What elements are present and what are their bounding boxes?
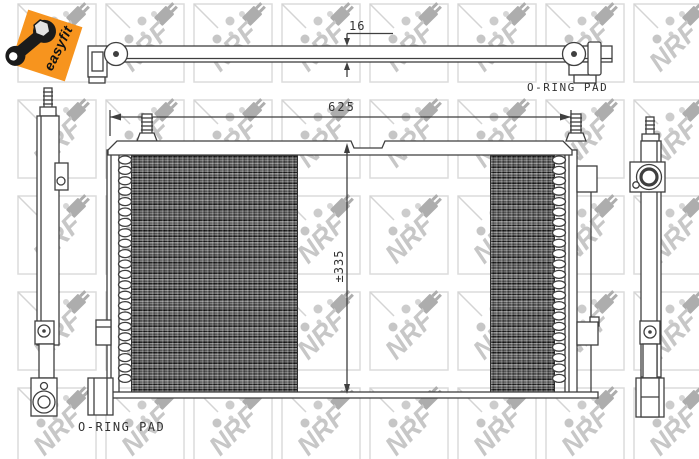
fin-coil-right (553, 156, 566, 382)
bracket-right-lower (577, 322, 598, 345)
fin-coil-left (119, 156, 132, 382)
wrench-bolt-icon (0, 2, 82, 86)
side-plate-right (565, 150, 577, 397)
top-right-tab (588, 42, 601, 75)
dim-depth-label: 16 (349, 19, 365, 33)
dim-width-label: 625 (318, 100, 366, 114)
mount-stud-left (137, 114, 157, 141)
condenser-technical-drawing: NRF NRF NRF (0, 0, 699, 459)
bottom-plate (107, 392, 598, 398)
dim-height-label: ±335 (332, 243, 346, 289)
header-plate (108, 141, 572, 155)
side-plate-left (107, 150, 119, 397)
mount-stud-right (566, 114, 586, 141)
bracket-right-upper (577, 166, 597, 192)
outlet-pipe (88, 378, 113, 415)
left-side-view (31, 88, 68, 416)
condenser-top-view (88, 42, 612, 83)
right-side-view (630, 117, 665, 417)
oring-pad-label-bottom: O-RING PAD (78, 420, 165, 434)
drawing-linework (0, 0, 699, 459)
oring-pad-label-top: O-RING PAD (527, 81, 608, 94)
easyfit-badge: easyfit (2, 2, 94, 94)
bracket-left (96, 320, 111, 345)
